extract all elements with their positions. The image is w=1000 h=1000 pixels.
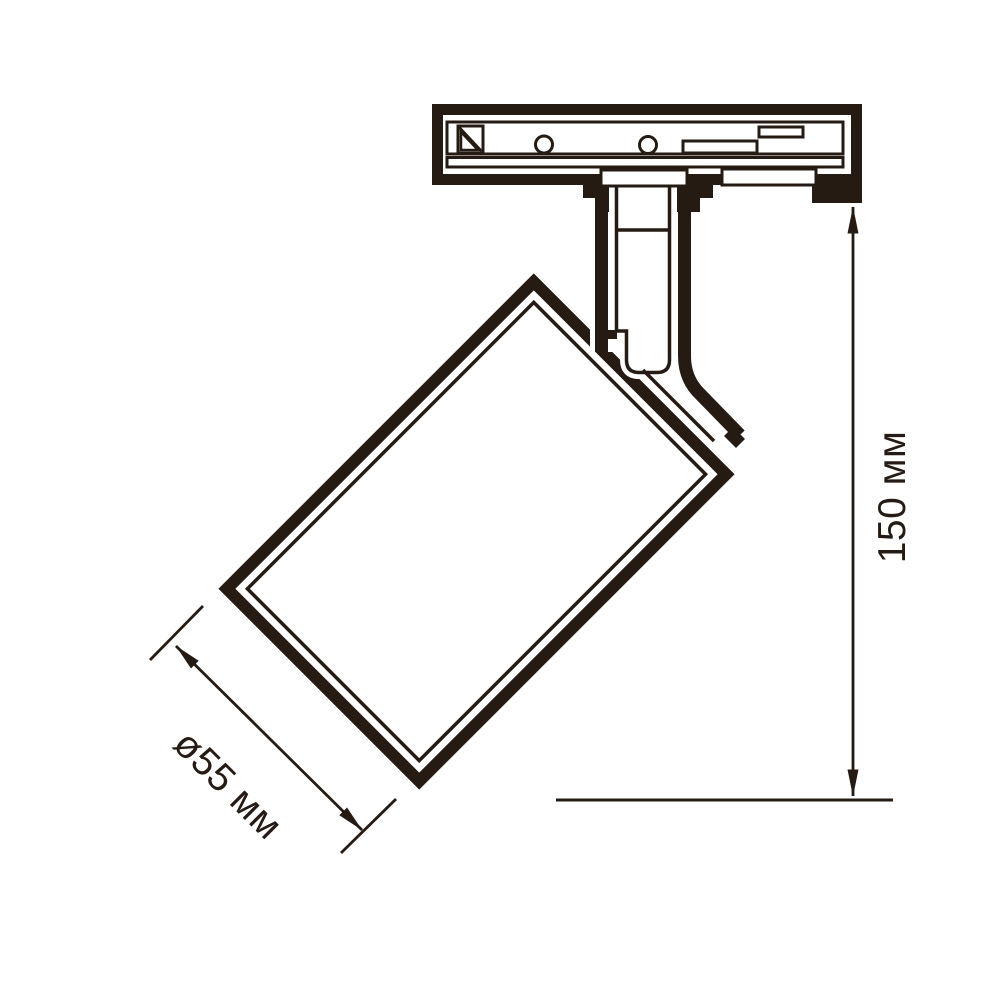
stem-inner-halo <box>617 186 670 373</box>
extension-tick-upper <box>150 606 203 660</box>
height-dimension-label: 150 мм <box>871 431 914 564</box>
mount-tab-center <box>601 170 687 186</box>
diagram-page: 150 мм ø55 мм <box>0 0 1000 1000</box>
track-adapter <box>438 110 863 213</box>
adapter-slot-strip <box>447 158 843 168</box>
stem-pivot-nub <box>605 330 617 339</box>
screw-hole-left <box>536 136 553 153</box>
label-plate-top-right <box>759 127 803 137</box>
technical-drawing: 150 мм ø55 мм <box>0 0 1000 1000</box>
screw-hole-right <box>640 137 657 154</box>
extension-tick-lower <box>341 799 396 853</box>
label-plate-mid <box>683 141 757 153</box>
head-outer <box>227 282 726 781</box>
adapter-step-block <box>812 183 862 203</box>
mount-tab-right <box>722 169 816 185</box>
spotlight-head <box>227 282 726 781</box>
connector-icon <box>458 126 483 153</box>
